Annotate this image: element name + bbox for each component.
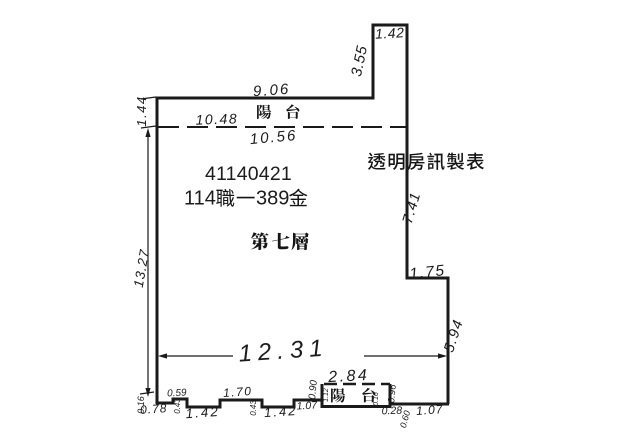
svg-text:1.42: 1.42 (264, 403, 298, 420)
svg-text:0.96: 0.96 (386, 383, 399, 403)
svg-text:0.16: 0.16 (136, 396, 146, 414)
svg-text:1.12: 1.12 (323, 388, 330, 402)
svg-text:10.48: 10.48 (195, 110, 238, 127)
svg-text:389: 389 (256, 188, 289, 210)
svg-text:0.90: 0.90 (307, 379, 320, 400)
svg-text:0.43: 0.43 (173, 398, 182, 414)
svg-text:1.07: 1.07 (416, 402, 445, 418)
svg-text:114: 114 (184, 188, 216, 210)
svg-text:0.16: 0.16 (373, 392, 380, 406)
svg-text:41140421: 41140421 (205, 163, 292, 185)
svg-text:9.06: 9.06 (253, 81, 291, 101)
svg-text:0.28: 0.28 (381, 405, 402, 418)
svg-text:0.43: 0.43 (249, 400, 258, 416)
svg-text:1.07: 1.07 (296, 399, 318, 412)
svg-text:1.42: 1.42 (375, 24, 405, 42)
svg-text:2.84: 2.84 (327, 367, 370, 386)
svg-text:0.59: 0.59 (167, 387, 187, 399)
svg-text:1.70: 1.70 (223, 384, 253, 400)
svg-text:1.44: 1.44 (134, 95, 149, 126)
svg-text:1.42: 1.42 (185, 404, 220, 421)
